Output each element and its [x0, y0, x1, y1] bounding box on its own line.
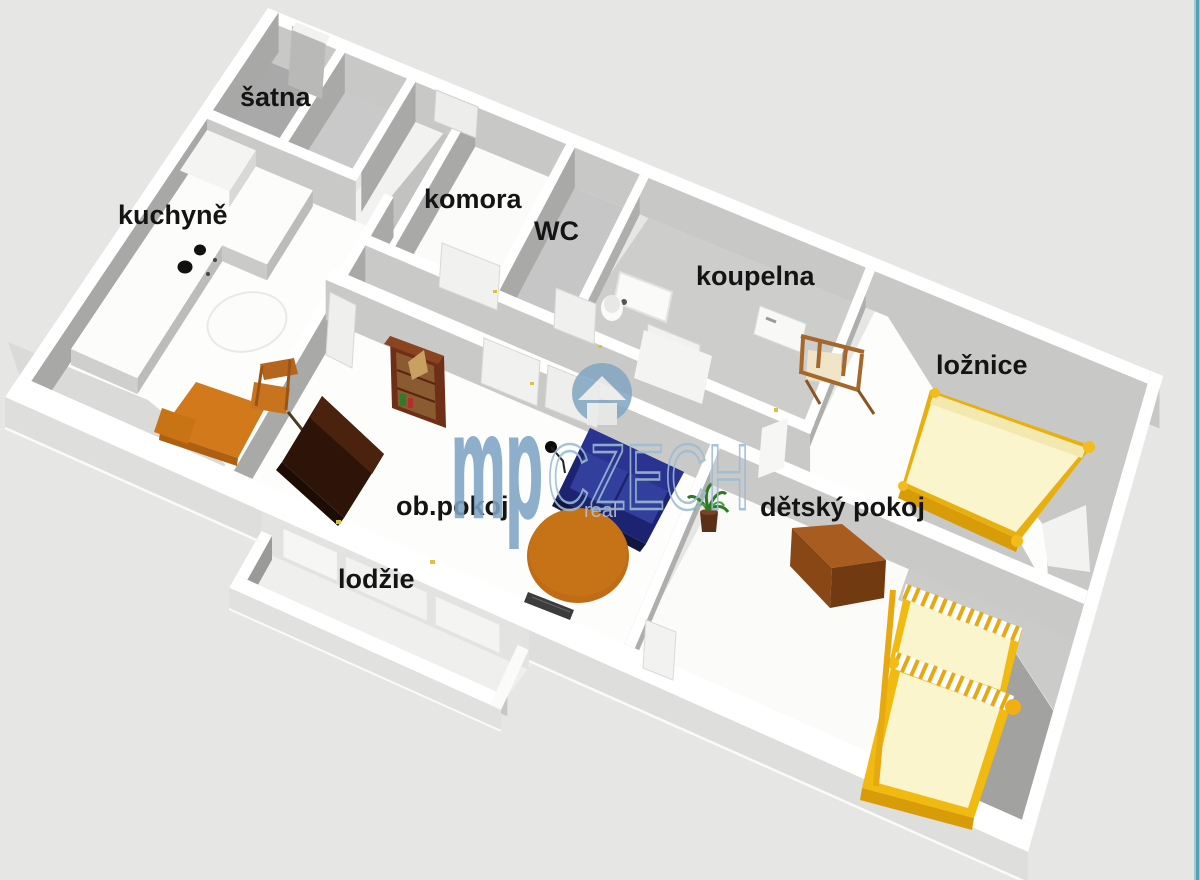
svg-text:real: real: [584, 500, 617, 522]
svg-text:CZECH: CZECH: [547, 425, 750, 529]
svg-text:kuchyně: kuchyně: [118, 200, 228, 230]
svg-text:komora: komora: [424, 184, 523, 214]
svg-text:mp: mp: [451, 384, 543, 549]
svg-text:koupelna: koupelna: [696, 261, 816, 291]
svg-text:lodžie: lodžie: [338, 564, 415, 594]
svg-text:WC: WC: [534, 216, 579, 246]
svg-text:dětský pokoj: dětský pokoj: [760, 492, 925, 522]
svg-text:ložnice: ložnice: [936, 350, 1028, 380]
svg-text:šatna: šatna: [240, 82, 312, 112]
